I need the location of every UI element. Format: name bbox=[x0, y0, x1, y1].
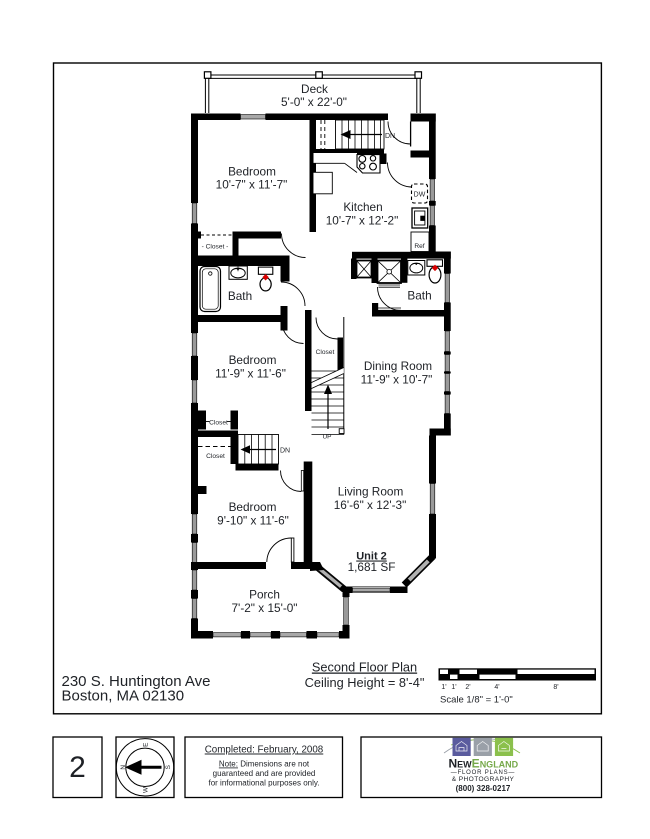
svg-text:Closet: Closet bbox=[209, 420, 228, 427]
svg-text:W: W bbox=[142, 786, 149, 793]
svg-text:Bedroom: Bedroom bbox=[229, 500, 277, 514]
svg-text:Boston, MA 02130: Boston, MA 02130 bbox=[62, 688, 185, 705]
svg-text:10'-7" x 11'-7": 10'-7" x 11'-7" bbox=[216, 178, 288, 192]
svg-text:Note: Dimensions are not: Note: Dimensions are not bbox=[219, 760, 310, 769]
svg-text:(800) 328-0217: (800) 328-0217 bbox=[456, 784, 511, 793]
svg-text:Bath: Bath bbox=[407, 289, 431, 303]
svg-text:4': 4' bbox=[494, 684, 499, 691]
svg-text:S: S bbox=[165, 765, 172, 769]
svg-text:Scale 1/8" = 1'-0": Scale 1/8" = 1'-0" bbox=[440, 695, 513, 706]
svg-text:2': 2' bbox=[465, 684, 470, 691]
svg-text:& PHOTOGRAPHY: & PHOTOGRAPHY bbox=[452, 776, 515, 783]
svg-text:Living Room: Living Room bbox=[338, 485, 404, 499]
svg-text:10'-7" x 12'-2": 10'-7" x 12'-2" bbox=[326, 214, 399, 228]
svg-text:Bedroom: Bedroom bbox=[229, 353, 277, 367]
svg-text:for informational purposes onl: for informational purposes only. bbox=[208, 779, 319, 788]
svg-text:Porch: Porch bbox=[249, 588, 280, 602]
svg-text:Completed: February, 2008: Completed: February, 2008 bbox=[205, 745, 324, 756]
svg-text:Kitchen: Kitchen bbox=[343, 200, 382, 214]
svg-text:1': 1' bbox=[441, 684, 446, 691]
svg-text:8': 8' bbox=[553, 684, 558, 691]
svg-text:Ref: Ref bbox=[414, 243, 424, 250]
svg-text:N: N bbox=[120, 765, 127, 770]
svg-text:DW: DW bbox=[414, 192, 426, 199]
svg-text:1': 1' bbox=[451, 684, 456, 691]
svg-text:Ceiling Height = 8'-4": Ceiling Height = 8'-4" bbox=[305, 675, 425, 690]
svg-text:2: 2 bbox=[69, 751, 86, 784]
svg-text:- Closet -: - Closet - bbox=[202, 244, 229, 251]
svg-text:UP: UP bbox=[322, 434, 331, 441]
svg-text:Closet: Closet bbox=[206, 453, 225, 460]
svg-text:E: E bbox=[142, 743, 149, 747]
svg-text:Dining Room: Dining Room bbox=[364, 359, 432, 373]
svg-text:DN: DN bbox=[280, 448, 290, 455]
svg-text:1,681 SF: 1,681 SF bbox=[348, 560, 396, 574]
svg-text:7'-2" x 15'-0": 7'-2" x 15'-0" bbox=[232, 601, 298, 615]
svg-text:Closet: Closet bbox=[316, 349, 335, 356]
svg-text:9'-10" x 11'-6": 9'-10" x 11'-6" bbox=[217, 514, 289, 528]
svg-text:guaranteed and are provided: guaranteed and are provided bbox=[213, 769, 316, 778]
svg-text:NEWENGLAND: NEWENGLAND bbox=[449, 756, 519, 770]
svg-text:16'-6" x 12'-3": 16'-6" x 12'-3" bbox=[334, 498, 407, 512]
svg-text:11'-9" x 10'-7": 11'-9" x 10'-7" bbox=[361, 373, 433, 387]
svg-text:11'-9" x 11'-6": 11'-9" x 11'-6" bbox=[215, 367, 286, 381]
svg-text:Deck: Deck bbox=[301, 82, 328, 96]
svg-text:5'-0" x 22'-0": 5'-0" x 22'-0" bbox=[281, 95, 347, 109]
svg-text:Second Floor Plan: Second Floor Plan bbox=[312, 660, 417, 675]
svg-text:Bath: Bath bbox=[228, 289, 252, 303]
svg-text:Bedroom: Bedroom bbox=[228, 165, 276, 179]
